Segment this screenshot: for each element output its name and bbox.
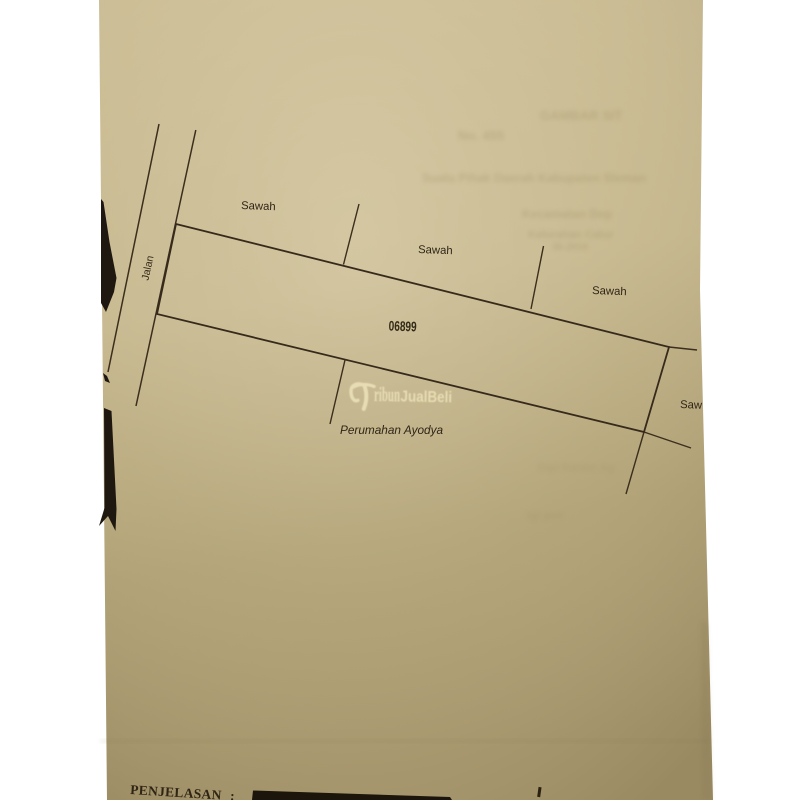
svg-text:Sawah: Sawah [418,244,453,257]
svg-text:ribun: ribun [374,382,401,406]
svg-text::: : [230,788,235,800]
svg-text:30.2016: 30.2016 [552,242,589,253]
svg-text:Saw: Saw [680,399,703,412]
svg-text:Dipl Kantor Ag: Dipl Kantor Ag [538,462,615,474]
svg-text:Sawah: Sawah [241,200,276,213]
svg-text:tgl pen: tgl pen [527,510,563,522]
svg-text:JualBeli: JualBeli [400,389,452,407]
svg-text:Sawah: Sawah [592,285,627,298]
svg-text:No. 455: No. 455 [458,128,504,143]
svg-text:Suatu Pihak Daerah Kabupaten S: Suatu Pihak Daerah Kabupaten Sleman [422,171,646,185]
svg-text:Kelurahan Catur: Kelurahan Catur [528,229,614,241]
svg-text:Kecamatan Dep: Kecamatan Dep [522,207,612,221]
svg-text:06899: 06899 [388,318,417,335]
svg-text:GAMBAR SIT: GAMBAR SIT [540,108,622,123]
svg-text:Perumahan Ayodya: Perumahan Ayodya [340,423,444,437]
